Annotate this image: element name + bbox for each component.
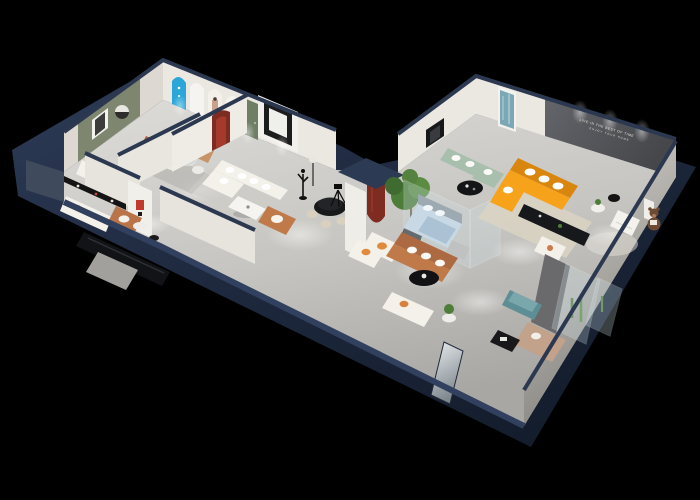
black-oval-table — [409, 270, 439, 286]
pillow — [531, 333, 541, 340]
white-chair — [192, 166, 204, 174]
cushion — [271, 215, 283, 223]
foliage — [385, 177, 403, 195]
orange-pillow — [362, 249, 371, 255]
cushion — [119, 215, 130, 222]
cream-chair — [321, 220, 332, 228]
poster-figure-head — [213, 97, 217, 101]
door-knob — [254, 122, 256, 124]
console-decor — [539, 215, 542, 218]
red-arch-inner — [216, 116, 226, 148]
shelf-decor — [111, 200, 114, 203]
shelf-decor — [95, 193, 98, 196]
orange-cushion — [547, 245, 553, 251]
pillow — [250, 178, 259, 184]
camera-body — [334, 184, 342, 189]
table-decor — [473, 188, 476, 191]
orange-pillow — [377, 242, 387, 249]
table-decor — [465, 184, 468, 187]
cushion — [407, 247, 417, 254]
cushion — [421, 253, 431, 260]
white-arch-niche — [190, 83, 204, 117]
pillow — [238, 173, 247, 179]
orange-pillow — [400, 301, 409, 307]
plant — [444, 304, 454, 314]
pillow — [466, 161, 475, 167]
cushion — [435, 260, 445, 267]
table-decor — [246, 205, 249, 208]
side-table-plant — [595, 199, 601, 205]
round-side-table — [133, 222, 147, 230]
pillow — [539, 176, 550, 183]
console-plant — [558, 224, 562, 228]
pillow — [262, 184, 271, 190]
bear-muzzle — [652, 214, 656, 218]
pillow — [220, 178, 229, 184]
small-black-bowl-table — [608, 194, 620, 202]
pillow — [553, 183, 564, 190]
showroom-render: LIVE IN THE BEST OF TIME ENJOY YOUR HOME — [0, 0, 700, 500]
blue-abstract-art — [498, 86, 516, 132]
bowl — [422, 274, 427, 279]
red-logo-mark — [136, 200, 144, 210]
cream-chair — [307, 210, 318, 218]
pillow — [503, 187, 513, 194]
logo-mark — [138, 212, 142, 216]
pillow — [525, 169, 536, 176]
bear-sign — [650, 220, 657, 225]
arch-graphic-dot — [178, 87, 181, 90]
magazine — [500, 337, 507, 341]
isometric-floorplan-svg: LIVE IN THE BEST OF TIME ENJOY YOUR HOME — [0, 0, 700, 500]
pillow — [484, 169, 493, 175]
pillow — [226, 167, 235, 173]
shelf-decor — [77, 185, 80, 188]
black-round-coffee-table — [457, 181, 483, 196]
pillow — [452, 155, 461, 161]
